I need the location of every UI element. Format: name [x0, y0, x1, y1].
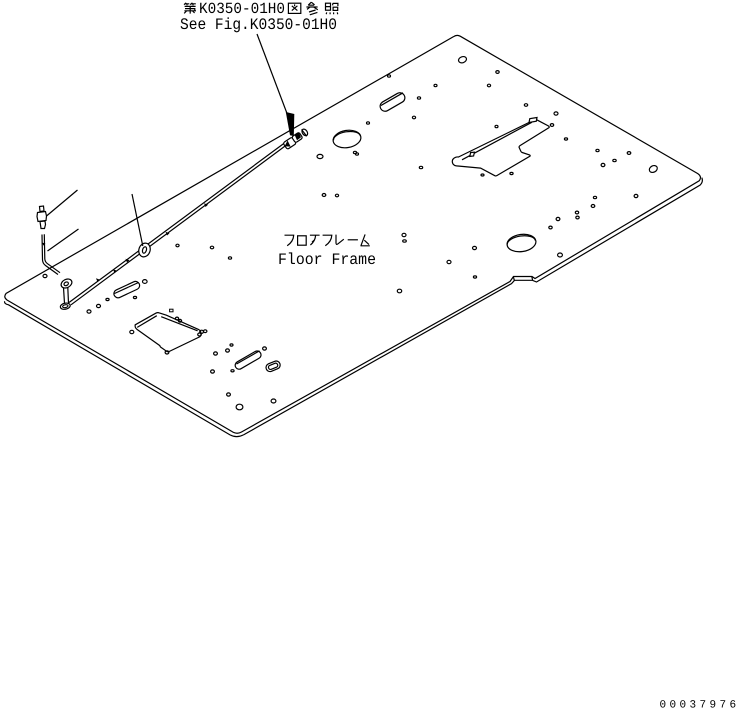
- svg-text:00037976: 00037976: [660, 700, 737, 709]
- svg-text:See Fig.K0350-01H0: See Fig.K0350-01H0: [180, 16, 337, 34]
- svg-text:Floor Frame: Floor Frame: [278, 251, 376, 269]
